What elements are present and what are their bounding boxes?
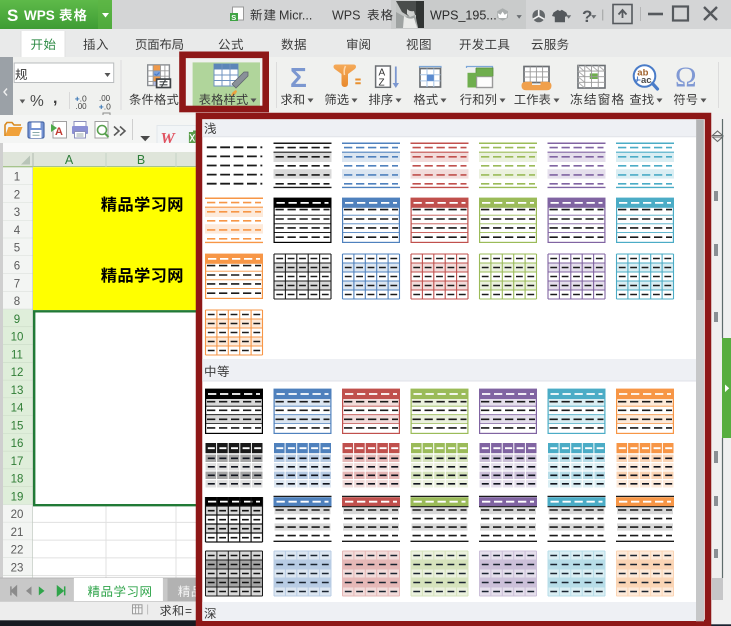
svg-text:S: S: [7, 6, 18, 25]
svg-text:18: 18: [11, 474, 24, 486]
svg-text:21: 21: [11, 527, 24, 539]
svg-text:17: 17: [11, 456, 24, 468]
svg-text:,: ,: [53, 90, 57, 107]
svg-text:2: 2: [14, 189, 20, 201]
svg-text:14: 14: [11, 403, 24, 415]
svg-text:WPS_195...: WPS_195...: [430, 9, 497, 23]
svg-text:13: 13: [11, 385, 24, 397]
svg-text:9: 9: [14, 314, 20, 326]
svg-text:1: 1: [14, 172, 20, 184]
svg-text:B: B: [137, 153, 145, 167]
svg-text:8: 8: [14, 296, 20, 308]
svg-text:ac: ac: [641, 75, 652, 86]
svg-text:Σ: Σ: [290, 62, 307, 93]
svg-text:A: A: [65, 153, 74, 167]
svg-text:%: %: [30, 93, 44, 110]
svg-text:7: 7: [14, 278, 20, 290]
svg-text:Micr...: Micr...: [279, 9, 312, 23]
svg-text:6: 6: [14, 261, 20, 273]
svg-text:3: 3: [14, 207, 20, 219]
svg-text:19: 19: [11, 491, 24, 503]
svg-text:11: 11: [11, 349, 23, 361]
svg-text:?: ?: [582, 7, 592, 26]
svg-text:Z: Z: [379, 78, 385, 89]
svg-text:12: 12: [11, 367, 24, 379]
svg-text:15: 15: [11, 420, 24, 432]
svg-text:23: 23: [11, 562, 24, 574]
svg-text:20: 20: [11, 509, 24, 521]
svg-text:WPS: WPS: [332, 9, 360, 23]
svg-text:Ω: Ω: [675, 62, 697, 94]
svg-text:16: 16: [11, 438, 24, 450]
svg-text:22: 22: [11, 545, 24, 557]
svg-text:10: 10: [11, 332, 24, 344]
svg-text:WPS: WPS: [24, 8, 55, 23]
svg-text:+.0: +.0: [99, 102, 111, 112]
svg-text:=: =: [185, 604, 192, 618]
svg-text:.00: .00: [76, 102, 88, 111]
svg-text:4: 4: [14, 225, 21, 237]
svg-text:S: S: [231, 13, 236, 22]
svg-text:5: 5: [14, 243, 20, 255]
